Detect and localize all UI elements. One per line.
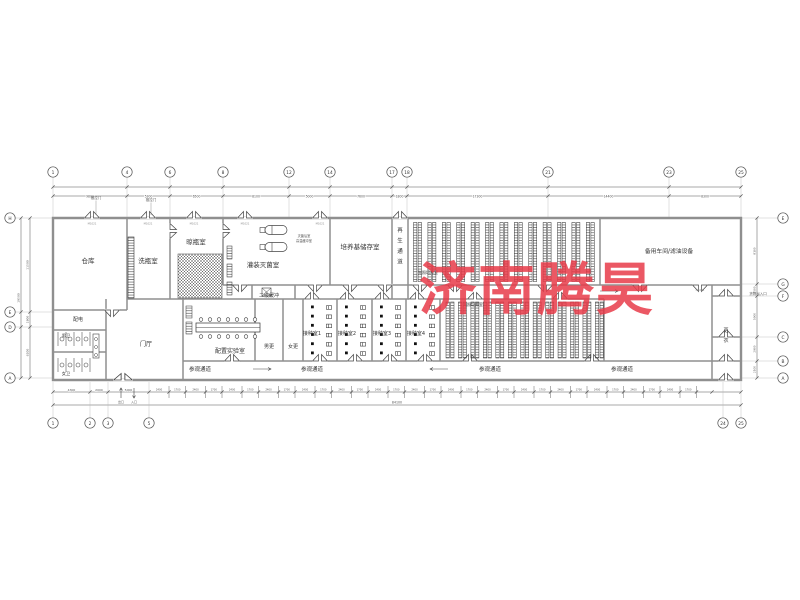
svg-text:1700: 1700 bbox=[211, 388, 218, 392]
room-label-bottle-washing: 洗瓶室 bbox=[138, 256, 158, 265]
svg-text:25: 25 bbox=[738, 421, 744, 427]
svg-text:B: B bbox=[782, 359, 785, 365]
svg-text:A: A bbox=[782, 376, 785, 382]
svg-text:1700: 1700 bbox=[393, 388, 400, 392]
room-label-inoculation-2: 接种室2 bbox=[338, 330, 356, 337]
svg-text:2100: 2100 bbox=[753, 366, 757, 373]
room-label-medium-storage: 培养基储存室 bbox=[341, 242, 381, 251]
svg-text:2400: 2400 bbox=[411, 388, 418, 392]
svg-text:H: H bbox=[8, 216, 11, 222]
svg-text:A: A bbox=[9, 376, 12, 382]
rack-icon bbox=[227, 282, 232, 295]
room-label-secondary-buffer: 二级缓冲 bbox=[259, 292, 279, 299]
svg-text:5000: 5000 bbox=[306, 194, 314, 198]
grid-and-dimensions-layer: 1468121417182123259800530065008100500076… bbox=[5, 167, 788, 428]
svg-text:2400: 2400 bbox=[338, 388, 345, 392]
goods-entrance-note: 货物出入口 bbox=[749, 291, 767, 296]
rack-icon bbox=[227, 246, 232, 259]
exit-note: 出口 bbox=[118, 399, 124, 404]
room-label-women-changing: 女更 bbox=[288, 343, 298, 350]
svg-text:25: 25 bbox=[738, 170, 744, 176]
svg-text:8100: 8100 bbox=[252, 194, 260, 198]
svg-text:7600: 7600 bbox=[357, 194, 365, 198]
svg-text:1700: 1700 bbox=[685, 388, 692, 392]
svg-text:M1021: M1021 bbox=[144, 222, 153, 226]
svg-text:M1021: M1021 bbox=[190, 222, 199, 226]
sliding-door-note-1: 推拉门 bbox=[91, 195, 102, 200]
svg-text:G: G bbox=[781, 282, 784, 288]
room-label-bottle-drying: 晾瓶室 bbox=[186, 237, 206, 246]
svg-text:18: 18 bbox=[404, 170, 410, 176]
svg-text:5000: 5000 bbox=[753, 313, 757, 320]
room-label-prep-lab: 配置实验室 bbox=[215, 347, 245, 355]
svg-text:M1021: M1021 bbox=[88, 222, 97, 226]
hot-buffer-note: 高温缓冲室 bbox=[296, 238, 312, 243]
svg-text:6500: 6500 bbox=[193, 194, 201, 198]
svg-text:M1021: M1021 bbox=[241, 222, 250, 226]
svg-text:12: 12 bbox=[286, 170, 292, 176]
svg-text:E: E bbox=[782, 216, 785, 222]
svg-text:C: C bbox=[781, 335, 784, 341]
floor-plan-drawing: 1468121417182123259800530065008100500076… bbox=[0, 0, 800, 600]
svg-text:2400: 2400 bbox=[594, 388, 601, 392]
room-label-inoculation-3: 接种室3 bbox=[373, 330, 391, 337]
svg-text:1700: 1700 bbox=[284, 388, 291, 392]
room-label-regeneration-corridor: 再生通道 bbox=[397, 227, 403, 266]
svg-text:3: 3 bbox=[107, 421, 110, 427]
room-label-lobby: 门厅 bbox=[140, 340, 152, 348]
entry-note: 入口 bbox=[131, 400, 137, 404]
washing-room-conveyor bbox=[128, 237, 134, 298]
svg-text:2400: 2400 bbox=[667, 388, 674, 392]
svg-text:11500: 11500 bbox=[26, 260, 30, 270]
lab-cabinet-icon bbox=[186, 306, 192, 318]
svg-text:23: 23 bbox=[666, 170, 672, 176]
corridor-label-4: 参观通道 bbox=[611, 365, 634, 373]
drying-room-floor-hatch bbox=[178, 254, 222, 298]
room-label-women-wc: 女卫 bbox=[62, 370, 70, 377]
svg-text:2400: 2400 bbox=[265, 388, 272, 392]
svg-text:2400: 2400 bbox=[375, 388, 382, 392]
svg-text:1700: 1700 bbox=[320, 388, 327, 392]
watermark-text: 济南腾昊 bbox=[419, 257, 655, 323]
room-label-warehouse: 仓库 bbox=[82, 256, 96, 265]
svg-text:5: 5 bbox=[148, 421, 151, 427]
svg-text:1800: 1800 bbox=[26, 316, 30, 324]
room-label-inoculation-1: 接种室1 bbox=[303, 330, 321, 337]
svg-text:1700: 1700 bbox=[357, 388, 364, 392]
svg-text:19500: 19500 bbox=[17, 293, 21, 303]
svg-text:2: 2 bbox=[89, 421, 92, 427]
autoclave-icon bbox=[260, 243, 287, 252]
svg-text:2400: 2400 bbox=[557, 388, 564, 392]
svg-text:1800: 1800 bbox=[396, 194, 404, 198]
svg-text:2400: 2400 bbox=[229, 388, 236, 392]
svg-text:8: 8 bbox=[222, 170, 225, 176]
svg-text:1700: 1700 bbox=[576, 388, 583, 392]
corridor-label-3: 参观通道 bbox=[479, 365, 502, 373]
svg-text:2400: 2400 bbox=[302, 388, 309, 392]
svg-text:2400: 2400 bbox=[484, 388, 491, 392]
svg-text:2400: 2400 bbox=[156, 388, 163, 392]
svg-text:2400: 2400 bbox=[448, 388, 455, 392]
floor-plan-canvas: 1468121417182123259800530065008100500076… bbox=[0, 0, 800, 600]
svg-text:1: 1 bbox=[52, 421, 55, 427]
corridor-label-1: 参观通道 bbox=[189, 365, 212, 373]
svg-text:14: 14 bbox=[327, 170, 333, 176]
room-label-men-changing: 男更 bbox=[264, 344, 274, 350]
post-sterilize-note: 灭菌后室 bbox=[298, 233, 311, 238]
svg-text:M1021: M1021 bbox=[696, 288, 705, 292]
svg-text:1700: 1700 bbox=[503, 388, 510, 392]
sink-unit bbox=[93, 334, 99, 358]
svg-text:2900: 2900 bbox=[753, 345, 757, 352]
svg-text:2400: 2400 bbox=[630, 388, 637, 392]
svg-text:4: 4 bbox=[126, 170, 129, 176]
svg-text:1700: 1700 bbox=[612, 388, 619, 392]
svg-text:5000: 5000 bbox=[125, 388, 133, 392]
svg-text:17: 17 bbox=[389, 170, 395, 176]
autoclave-icon bbox=[260, 226, 287, 235]
svg-text:6200: 6200 bbox=[26, 349, 30, 357]
room-label-power: 配电 bbox=[73, 316, 83, 323]
svg-text:M1021: M1021 bbox=[316, 222, 325, 226]
svg-text:2400: 2400 bbox=[521, 388, 528, 392]
svg-text:8100: 8100 bbox=[753, 247, 757, 254]
room-label-filling-sterilizing: 灌装灭菌室 bbox=[247, 260, 280, 269]
corridor-label-2: 参观通道 bbox=[301, 365, 324, 373]
room-label-inoculation-4: 接种室4 bbox=[407, 330, 425, 337]
svg-text:1700: 1700 bbox=[539, 388, 546, 392]
room-label-spare-workshop: 备用车间/滤油设备 bbox=[645, 247, 694, 255]
lab-cabinet-icon bbox=[186, 322, 192, 334]
svg-text:2400: 2400 bbox=[192, 388, 199, 392]
svg-text:21: 21 bbox=[545, 170, 551, 176]
rack-icon bbox=[227, 264, 232, 277]
svg-text:1700: 1700 bbox=[430, 388, 437, 392]
svg-text:8300: 8300 bbox=[701, 194, 709, 198]
svg-text:24: 24 bbox=[720, 421, 726, 427]
svg-text:14400: 14400 bbox=[604, 194, 614, 198]
svg-text:1: 1 bbox=[52, 170, 55, 176]
svg-text:2000: 2000 bbox=[95, 388, 103, 392]
svg-text:4300: 4300 bbox=[68, 388, 76, 392]
svg-text:1700: 1700 bbox=[247, 388, 254, 392]
svg-text:84100: 84100 bbox=[392, 401, 402, 405]
svg-text:1700: 1700 bbox=[466, 388, 473, 392]
svg-text:1700: 1700 bbox=[649, 388, 656, 392]
svg-text:17300: 17300 bbox=[473, 194, 483, 198]
svg-text:E: E bbox=[9, 310, 12, 316]
svg-text:6: 6 bbox=[169, 170, 172, 176]
sliding-door-note-2: 推拉门 bbox=[146, 197, 157, 202]
svg-text:1700: 1700 bbox=[174, 388, 181, 392]
